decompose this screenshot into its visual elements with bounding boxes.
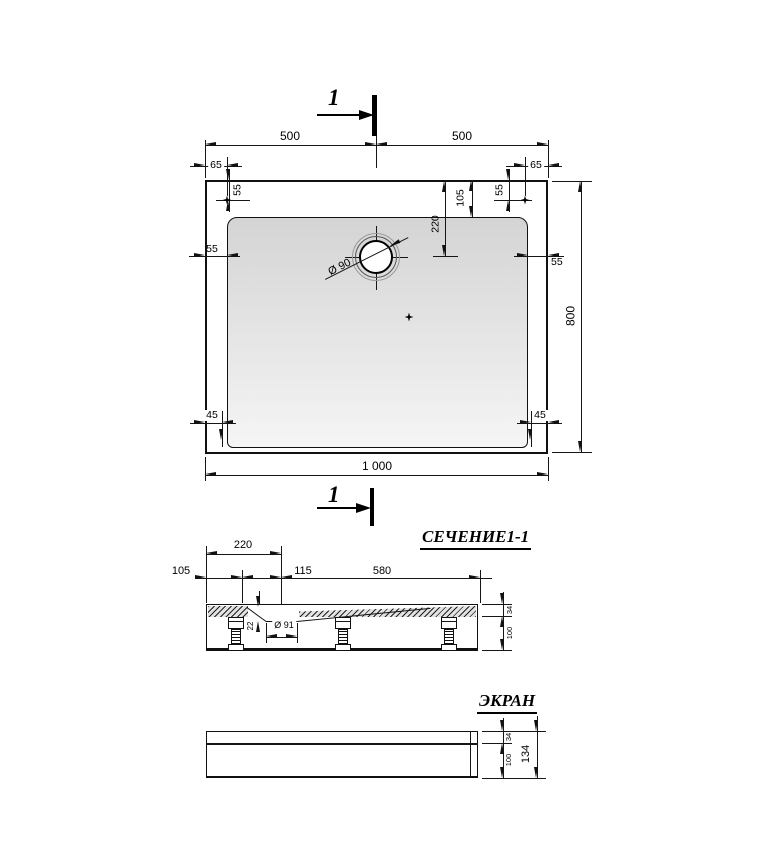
arrow-icon	[469, 180, 473, 191]
arrow-icon	[376, 142, 387, 146]
arrow-icon	[222, 420, 233, 424]
cut-mark-arrow-icon	[356, 503, 371, 513]
arrow-icon	[226, 169, 230, 180]
dim-500-right: 500	[452, 130, 472, 143]
arrow-icon	[266, 634, 277, 638]
arrow-icon	[500, 767, 504, 778]
arrow-icon	[469, 575, 480, 579]
leg-foot	[441, 644, 457, 651]
extension-line	[552, 181, 592, 182]
section-title: СЕЧЕНИЕ1-1	[420, 527, 531, 550]
extension-line	[297, 623, 298, 643]
arrow-icon	[242, 575, 253, 579]
arrow-icon	[442, 245, 446, 256]
dim-55-top-left: 55	[232, 184, 243, 196]
leg-nut-line	[335, 621, 351, 622]
screen-title: ЭКРАН	[477, 691, 537, 714]
dim-800: 800	[565, 306, 578, 326]
dim-500-left: 500	[280, 130, 300, 143]
dim-tick	[482, 743, 512, 744]
arrow-icon	[256, 621, 260, 632]
dim-580-section: 580	[371, 566, 393, 578]
arrow-icon	[500, 639, 504, 650]
arrow-icon	[206, 551, 217, 555]
arrow-icon	[442, 181, 446, 192]
extension-line	[266, 623, 267, 643]
screen-edge-line	[470, 731, 471, 778]
dim-tick	[482, 650, 512, 651]
arrow-icon	[548, 163, 559, 167]
arrow-icon	[256, 596, 260, 607]
extension-line	[548, 457, 549, 481]
leg-nut	[228, 617, 244, 629]
dim-1000: 1 000	[362, 460, 392, 473]
extension-line	[376, 136, 377, 168]
dim-100-screen: 100	[505, 754, 513, 767]
arrow-icon	[281, 575, 292, 579]
arrow-icon	[578, 181, 582, 192]
dim-55-top-right: 55	[494, 184, 505, 196]
arrow-icon	[517, 253, 528, 257]
arrow-icon	[227, 253, 238, 257]
extension-line	[480, 570, 481, 603]
leg-nut	[335, 617, 351, 629]
dim-220: 220	[430, 215, 441, 233]
arrow-icon	[194, 253, 205, 257]
arrow-icon	[506, 200, 510, 211]
dim-45-right: 45	[532, 410, 548, 421]
technical-drawing: 1 Ø 90	[0, 0, 764, 844]
arrow-icon	[365, 142, 376, 146]
dim-line	[581, 181, 582, 452]
arrow-icon	[469, 206, 473, 217]
arrow-icon	[506, 169, 510, 180]
extension-line	[525, 157, 526, 196]
extension-line	[552, 452, 592, 453]
arrow-icon	[226, 200, 230, 211]
arrow-icon	[205, 472, 216, 476]
arrow-icon	[231, 575, 242, 579]
dim-55-right: 55	[551, 257, 563, 268]
cut-mark-label: 1	[328, 85, 340, 111]
leg-nut	[441, 617, 457, 629]
dim-100-section: 100	[506, 627, 514, 640]
dim-tick	[482, 778, 546, 779]
dim-line	[205, 475, 548, 476]
arrow-icon	[520, 420, 531, 424]
arrow-icon	[270, 575, 281, 579]
dim-34-screen: 34	[505, 733, 513, 741]
cut-mark-arrow-icon	[359, 110, 374, 120]
arrow-icon	[534, 767, 538, 778]
leg-thread	[444, 629, 454, 645]
arrow-icon	[534, 720, 538, 731]
arrow-icon	[578, 441, 582, 452]
screen-divider	[206, 743, 478, 745]
leg-thread	[338, 629, 348, 645]
arrow-icon	[537, 142, 548, 146]
leg-nut-line	[441, 621, 457, 622]
extension-line	[205, 457, 206, 481]
dim-34-section: 34	[506, 606, 514, 614]
arrow-icon	[194, 163, 205, 167]
dim-115-section: 115	[292, 566, 314, 578]
arrow-icon	[548, 420, 559, 424]
arrow-icon	[537, 472, 548, 476]
arrow-icon	[514, 163, 525, 167]
dim-55-left: 55	[206, 244, 218, 255]
arrow-icon	[286, 634, 297, 638]
arrow-icon	[528, 429, 532, 440]
arrow-icon	[205, 142, 216, 146]
arrow-icon	[500, 720, 504, 731]
leg-nut-line	[228, 621, 244, 622]
arrow-icon	[227, 163, 238, 167]
section-slab-hatch-left	[208, 606, 248, 617]
screen-body	[206, 731, 478, 778]
dim-22: 22	[247, 622, 255, 631]
arrow-icon	[195, 575, 206, 579]
extension-line	[548, 140, 549, 178]
dim-o91: Ø 91	[272, 621, 296, 630]
dim-105: 105	[455, 189, 466, 207]
arrow-icon	[500, 593, 504, 604]
leg-foot	[228, 644, 244, 651]
arrow-icon	[219, 429, 223, 440]
drain-circle	[359, 240, 393, 274]
dim-tick	[433, 256, 458, 257]
dim-65-left: 65	[208, 160, 224, 171]
arrow-icon	[500, 616, 504, 627]
dim-134-screen: 134	[521, 745, 533, 763]
cut-mark-line	[317, 114, 361, 116]
dim-45-left: 45	[204, 410, 220, 421]
dim-105-section: 105	[170, 566, 192, 578]
leg-thread	[231, 629, 241, 645]
mount-marker-tick-left	[216, 200, 250, 201]
dim-tick	[482, 616, 512, 617]
arrow-icon	[270, 551, 281, 555]
cut-mark-label: 1	[328, 482, 340, 508]
dim-220-section: 220	[234, 540, 252, 552]
arrow-icon	[500, 743, 504, 754]
leg-foot	[335, 644, 351, 651]
dim-65-right: 65	[528, 160, 544, 171]
